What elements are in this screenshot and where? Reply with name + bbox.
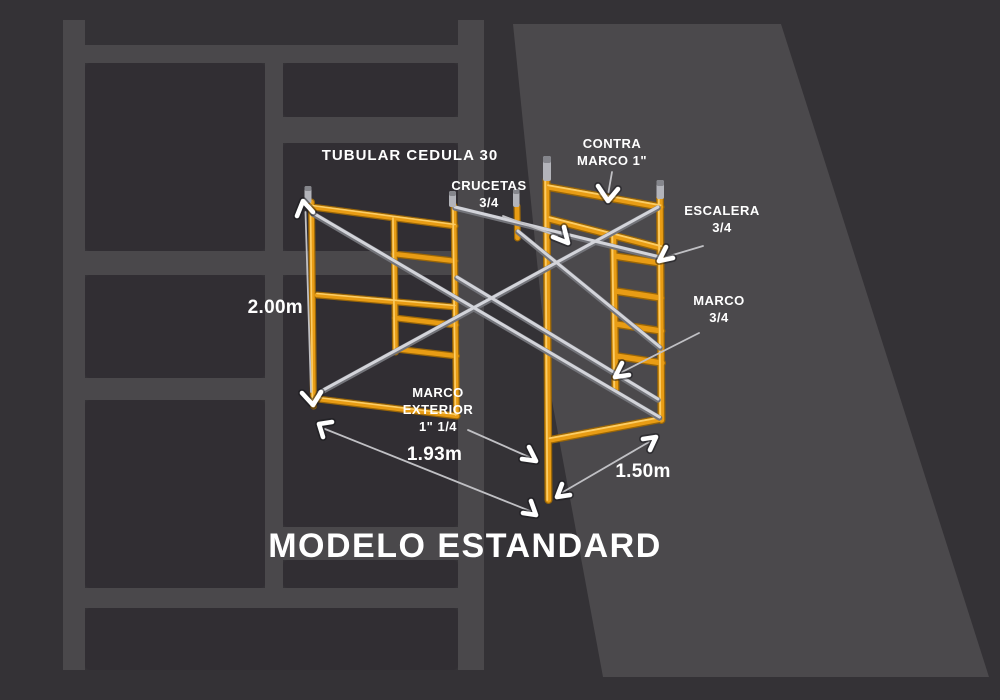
label-contra-marco-line1: CONTRA [562, 135, 662, 152]
dimension-depth: 1.93m [392, 444, 477, 466]
label-contra-marco-line2: MARCO 1" [562, 152, 662, 169]
label-marco-exterior-line2: EXTERIOR [388, 401, 488, 418]
contra-marco-arrow-line [609, 172, 613, 192]
scaffold-diagram-page: { "title": "MODELO ESTANDARD", "heading"… [0, 0, 1000, 700]
dimension-width: 1.50m [598, 461, 688, 483]
label-escalera: ESCALERA 3/4 [672, 202, 772, 236]
label-crucetas: CRUCETAS 3/4 [437, 177, 541, 211]
label-marco-exterior-line3: 1" 1/4 [388, 418, 488, 435]
label-marco-line2: 3/4 [669, 309, 769, 326]
label-marco-exterior-line1: MARCO [388, 384, 488, 401]
label-crucetas-line2: 3/4 [437, 194, 541, 211]
scaffold-illustration [0, 0, 1000, 700]
label-marco: MARCO 3/4 [669, 292, 769, 326]
depth-dimension-line [325, 429, 530, 511]
label-escalera-line2: 3/4 [672, 219, 772, 236]
label-escalera-line1: ESCALERA [672, 202, 772, 219]
label-marco-line1: MARCO [669, 292, 769, 309]
heading-tubular-cedula: TUBULAR CEDULA 30 [315, 147, 505, 164]
label-marco-exterior: MARCO EXTERIOR 1" 1/4 [388, 384, 488, 435]
label-crucetas-line1: CRUCETAS [437, 177, 541, 194]
label-contra-marco: CONTRA MARCO 1" [562, 135, 662, 169]
page-title: MODELO ESTANDARD [165, 527, 765, 566]
dimension-height: 2.00m [228, 297, 303, 319]
